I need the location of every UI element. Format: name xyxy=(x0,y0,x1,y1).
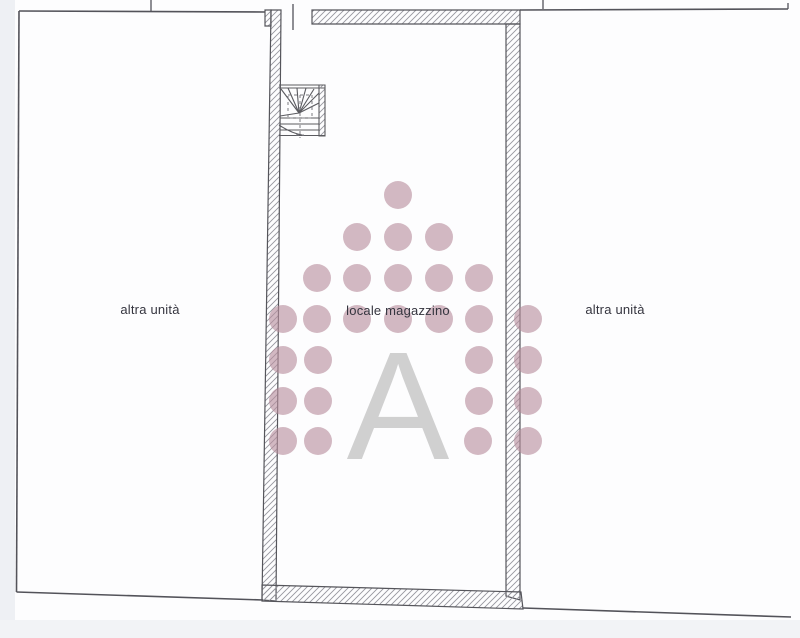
watermark-dot xyxy=(514,387,542,415)
wall-left xyxy=(262,10,281,601)
stair-treads xyxy=(279,118,325,136)
watermark-dot xyxy=(425,223,453,251)
room-label-left-unit: altra unità xyxy=(95,302,205,317)
watermark-dot xyxy=(303,264,331,292)
watermark-dot xyxy=(465,264,493,292)
watermark-dot xyxy=(269,387,297,415)
watermark-dot xyxy=(304,387,332,415)
watermark-dot xyxy=(304,427,332,455)
watermark-dot xyxy=(269,305,297,333)
staircase-symbol xyxy=(279,85,325,138)
watermark-dot xyxy=(269,346,297,374)
watermark-dot xyxy=(464,427,492,455)
watermark-dot xyxy=(303,305,331,333)
watermark-dot xyxy=(514,427,542,455)
watermark-dot xyxy=(384,264,412,292)
watermark-dot xyxy=(465,346,493,374)
floor-plan-drawing: A xyxy=(0,0,800,638)
watermark-dot xyxy=(269,427,297,455)
watermark-dot xyxy=(465,305,493,333)
watermark-letter-a: A xyxy=(347,320,450,492)
watermark-dot xyxy=(384,223,412,251)
wall-pilaster xyxy=(265,10,271,26)
watermark-dot xyxy=(425,264,453,292)
wall-bottom xyxy=(262,585,523,609)
room-label-storage: locale magazzino xyxy=(340,303,456,318)
watermark-dot xyxy=(304,346,332,374)
room-label-right-unit: altra unità xyxy=(560,302,670,317)
wall-top xyxy=(312,10,520,24)
stair-stub-wall xyxy=(319,85,325,136)
watermark-dot xyxy=(465,387,493,415)
watermark-dot xyxy=(343,264,371,292)
watermark-dot xyxy=(514,305,542,333)
watermark-dot xyxy=(514,346,542,374)
scanned-floor-plan-page: A altra unità locale magazzino altra uni… xyxy=(0,0,800,638)
watermark-dot xyxy=(384,181,412,209)
watermark: A xyxy=(269,181,542,492)
watermark-dot xyxy=(343,223,371,251)
